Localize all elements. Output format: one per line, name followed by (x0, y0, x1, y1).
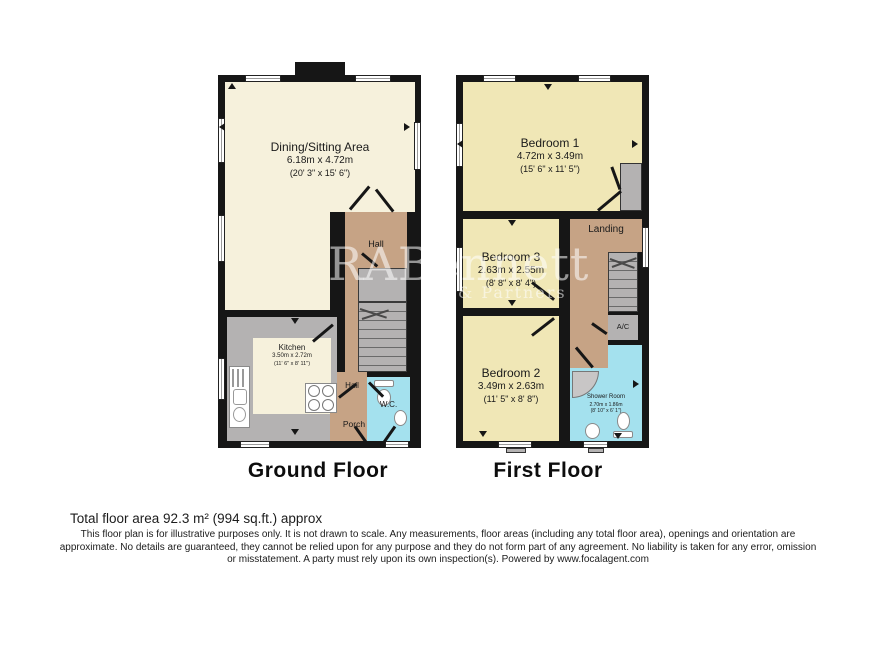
burner (322, 399, 334, 411)
window (578, 75, 611, 82)
room-dims-imperial: (8' 10" x 6' 1") (574, 408, 638, 414)
room-dims-metric: 3.49m x 2.63m (465, 381, 557, 394)
window (414, 122, 421, 170)
wall-arrow-icon (291, 318, 299, 324)
wall-arrow-icon (614, 433, 622, 439)
room-dims-imperial: (8' 8" x 8' 4") (465, 278, 557, 289)
room-label-shower: Shower Room 2.70m x 1.86m (8' 10" x 6' 1… (574, 394, 638, 414)
room-label-ac: A/C (608, 322, 638, 331)
floorplan-image: Dining/Sitting Area 6.18m x 4.72m (20' 3… (0, 0, 875, 668)
window (456, 247, 463, 292)
room-name: Dining/Sitting Area (235, 140, 405, 155)
wall-arrow-icon (508, 220, 516, 226)
oven-ring (233, 407, 246, 422)
window (385, 441, 409, 448)
room-label-hall-lower: Hall (337, 381, 367, 390)
room-name: Bedroom 2 (465, 366, 557, 381)
room-dims-metric: 3.50m x 2.72m (253, 353, 331, 361)
basin-icon (585, 423, 600, 439)
window (218, 358, 225, 400)
window-sill (506, 448, 526, 453)
room-name: Kitchen (253, 343, 331, 353)
wall-arrow-icon (219, 123, 225, 131)
wall-arrow-icon (632, 140, 638, 148)
basin-icon (394, 410, 407, 426)
window (355, 75, 391, 82)
window (498, 441, 532, 448)
room-dims-imperial: (11' 5" x 8' 8") (465, 394, 557, 405)
room-dining-sitting-area-extension (225, 212, 330, 310)
room-dims-metric: 4.72m x 3.49m (470, 151, 630, 164)
wall-arrow-icon (291, 429, 299, 435)
window (245, 75, 281, 82)
wall-arrow-icon (404, 123, 410, 131)
wall-arrow-icon (228, 83, 236, 89)
window (583, 441, 608, 448)
window-sill (588, 448, 604, 453)
room-label-kitchen: Kitchen 3.50m x 2.72m (11' 6" x 8' 11") (253, 343, 331, 367)
kitchen-sink-icon (229, 366, 250, 428)
understairs-cupboard (358, 268, 407, 302)
wall-arrow-icon (457, 352, 463, 360)
room-dims-imperial: (20' 3" x 15' 6") (235, 168, 405, 179)
drainer-lines (232, 369, 247, 387)
first-floor-caption: First Floor (458, 459, 638, 483)
window (642, 227, 649, 268)
room-label-bedroom-2: Bedroom 2 3.49m x 2.63m (11' 5" x 8' 8") (465, 366, 557, 405)
toilet-bowl-icon (617, 412, 630, 430)
wall-arrow-icon (457, 140, 463, 148)
room-label-hall-upper: Hall (345, 239, 407, 249)
burner (308, 385, 320, 397)
hall-stair-side (345, 305, 358, 372)
room-dims-metric: 6.18m x 4.72m (235, 155, 405, 168)
wall-arrow-icon (508, 300, 516, 306)
wall-arrow-icon (544, 84, 552, 90)
window (240, 441, 270, 448)
room-label-porch: Porch (330, 419, 378, 429)
wall-arrow-icon (633, 380, 639, 388)
room-label-landing: Landing (570, 224, 642, 235)
window (218, 215, 225, 262)
wall-arrow-icon (219, 351, 225, 359)
wall-arrow-icon (479, 431, 487, 437)
room-name: Bedroom 1 (470, 136, 630, 151)
disclaimer-text: This floor plan is for illustrative purp… (57, 529, 819, 567)
total-floor-area-text: Total floor area 92.3 m² (994 sq.ft.) ap… (70, 511, 322, 526)
window (483, 75, 516, 82)
room-name: Shower Room (574, 394, 638, 402)
room-label-dining: Dining/Sitting Area 6.18m x 4.72m (20' 3… (235, 140, 405, 179)
sink-bowl (233, 389, 247, 405)
burner (322, 385, 334, 397)
toilet-cistern-icon (374, 380, 394, 387)
ground-floor-caption: Ground Floor (228, 459, 408, 483)
room-label-wc: W.C. (367, 400, 410, 409)
room-dims-metric: 2.63m x 2.55m (465, 265, 557, 278)
room-dims-imperial: (11' 6" x 8' 11") (253, 361, 331, 368)
room-label-bedroom-3: Bedroom 3 2.63m x 2.55m (8' 8" x 8' 4") (465, 250, 557, 289)
room-dims-imperial: (15' 6" x 11' 5") (470, 164, 630, 175)
hob-icon (305, 383, 337, 413)
burner (308, 399, 320, 411)
room-label-bedroom-1: Bedroom 1 4.72m x 3.49m (15' 6" x 11' 5"… (470, 136, 630, 175)
room-name: Bedroom 3 (465, 250, 557, 265)
